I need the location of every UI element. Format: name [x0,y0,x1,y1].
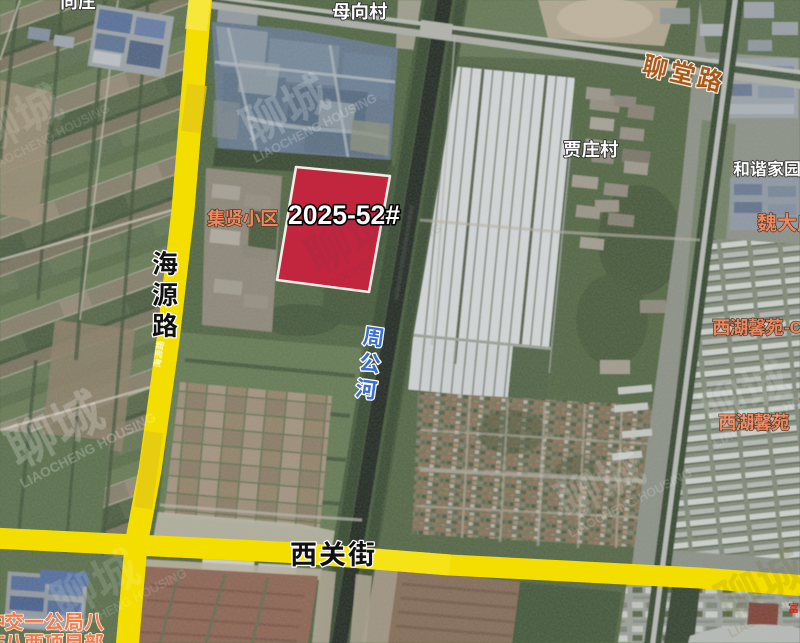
svg-text:-C: -C [784,318,800,337]
